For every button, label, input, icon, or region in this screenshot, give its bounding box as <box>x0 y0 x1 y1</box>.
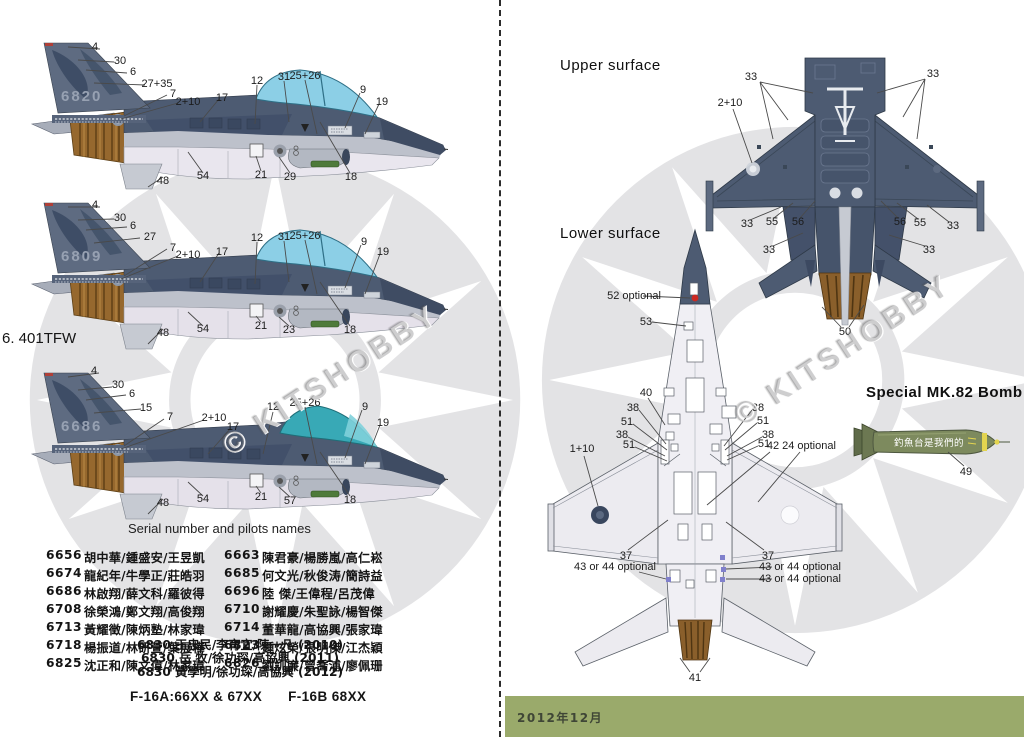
squadron-label: 6. 401TFW <box>2 330 76 347</box>
serial-extra-row: 6830 黃學明/徐功琛/高協興 (2012) <box>110 666 370 679</box>
pilot-names: 黃耀徵/陳炳塾/林家瑋 <box>84 620 224 638</box>
pilot-names: 董華龍/高協興/張家瑋 <box>262 620 383 638</box>
f16b-side-profile-1: 6820 <box>28 36 448 196</box>
right-wing <box>732 443 837 564</box>
serial-row: 6674龍紀年/牛學正/莊皓羽6685何文光/秋俊涛/簡詩益 <box>46 566 383 584</box>
serial-number: 6663 <box>224 548 262 566</box>
left-wing <box>553 443 658 564</box>
serial-extra-rows: 6830 王忠民/李育宜/陳一凡 (2010)6830 岳 牧/徐功琛/高協興 … <box>110 639 370 679</box>
serial-row: 6656胡中華/鍾盛安/王昱凱6663陳君豪/楊勝嵐/高仁崧 <box>46 548 383 566</box>
right-stabilizer <box>722 598 815 666</box>
serials-heading: Serial number and pilots names <box>128 521 311 536</box>
serial-number: 6713 <box>46 620 84 638</box>
serial-number: 6685 <box>224 566 262 584</box>
issue-date: 2012年12月 <box>517 709 603 726</box>
serial-number: 6674 <box>46 566 84 584</box>
pilot-names: 謝耀慶/朱聖詠/楊智傑 <box>262 602 383 620</box>
lower-surface-drawing <box>540 228 880 688</box>
f16b-range: F-16B 68XX <box>288 689 366 704</box>
tail-number: 6820 <box>61 88 102 105</box>
mk82-bomb-drawing: 釣魚台是我們的 <box>848 412 1018 482</box>
serial-number: 6656 <box>46 548 84 566</box>
pilot-names: 林啟翔/薛文科/羅彼得 <box>84 584 224 602</box>
red-dot-marker <box>692 295 699 302</box>
bomb-fuze <box>994 439 999 444</box>
serial-row: 6713黃耀徵/陳炳塾/林家瑋6714董華龍/高協興/張家瑋 <box>46 620 383 638</box>
serial-number: 6710 <box>224 602 262 620</box>
serial-number: 6708 <box>46 602 84 620</box>
serial-row: 6708徐榮鴻/鄭文翔/高俊翔6710謝耀慶/朱聖詠/楊智傑 <box>46 602 383 620</box>
serial-footer: F-16A:66XX & 67XXF-16B 68XX <box>130 689 366 704</box>
serial-extra-row: 6830 岳 牧/徐功琛/高協興 (2011) <box>110 652 370 665</box>
pilot-names: 胡中華/鍾盛安/王昱凱 <box>84 548 224 566</box>
bomb-nose-band <box>982 433 987 451</box>
serial-number: 6696 <box>224 584 262 602</box>
serial-number: 6714 <box>224 620 262 638</box>
bomb-slogan-text: 釣魚台是我們的 <box>894 437 964 449</box>
pilot-names: 龍紀年/牛學正/莊皓羽 <box>84 566 224 584</box>
pilot-names: 徐榮鴻/鄭文翔/高俊翔 <box>84 602 224 620</box>
left-stabilizer <box>575 598 668 666</box>
tail-number: 6686 <box>61 418 102 435</box>
f16-profile-drawing: 6820 <box>28 36 448 196</box>
upper-surface-label: Upper surface <box>560 57 661 74</box>
instruction-sheet-page: © KITSHOBBY © KITSHOBBY <box>0 0 1024 737</box>
page-divider-dashed-line <box>499 0 501 737</box>
f16a-range: F-16A:66XX & 67XX <box>130 689 262 704</box>
pilot-names: 陸 傑/王偉程/呂茂偉 <box>262 584 375 602</box>
mk82-bomb-figure: 釣魚台是我們的 49 <box>848 412 1018 482</box>
serial-number: 6825 <box>46 656 84 674</box>
bomb-label: Special MK.82 Bomb <box>866 384 1023 401</box>
serial-row: 6686林啟翔/薛文科/羅彼得6696陸 傑/王偉程/呂茂偉 <box>46 584 383 602</box>
serial-number: 6686 <box>46 584 84 602</box>
tail-number: 6809 <box>61 248 102 265</box>
pilot-names: 何文光/秋俊涛/簡詩益 <box>262 566 383 584</box>
lower-surface-label: Lower surface <box>560 225 661 242</box>
exhaust-nozzle <box>678 620 712 660</box>
lower-surface-view: 52 optional5340385138511+10385138514224 … <box>540 228 880 688</box>
date-bar: 2012年12月 <box>505 696 1024 737</box>
pilot-names: 陳君豪/楊勝嵐/高仁崧 <box>262 548 383 566</box>
serial-number: 6718 <box>46 638 84 656</box>
fuselage-spine <box>805 58 885 207</box>
